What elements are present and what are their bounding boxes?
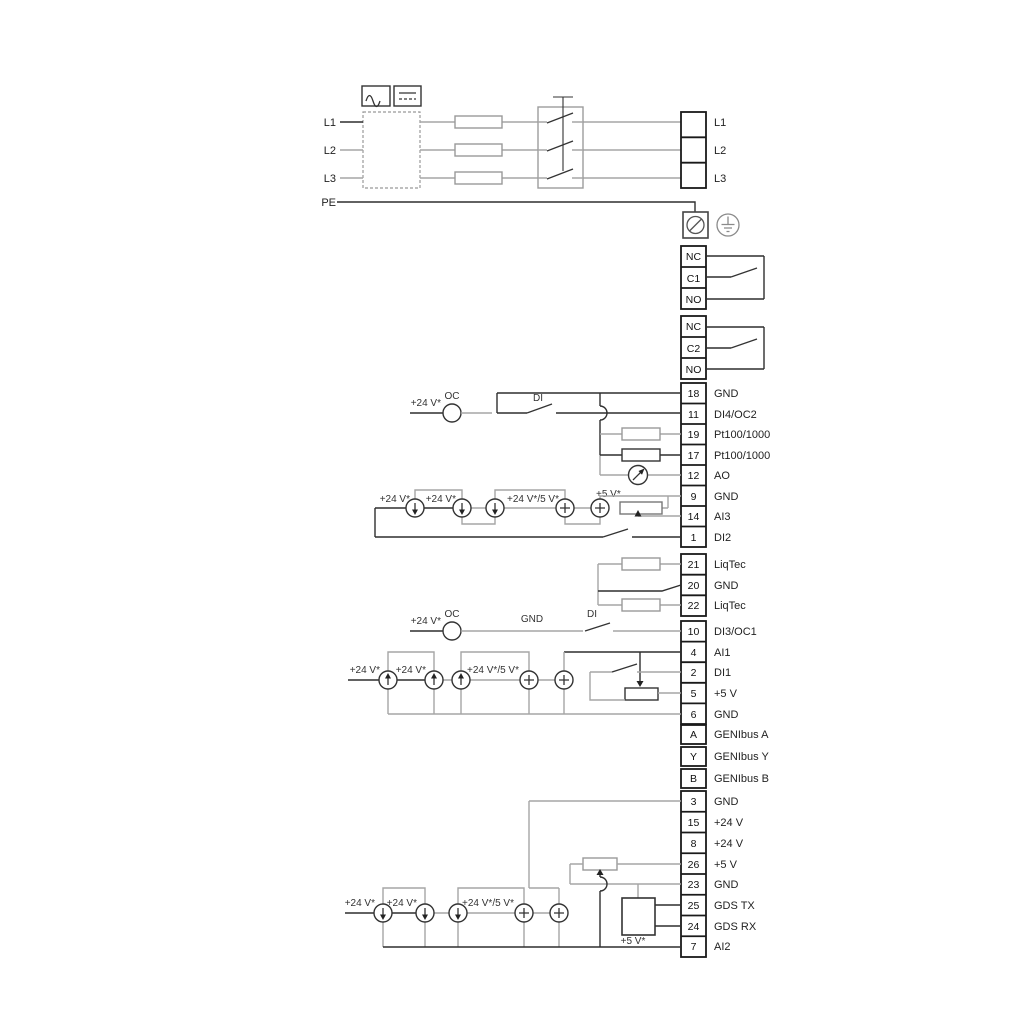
earth-ground-icon (717, 214, 739, 236)
current-source-icon (406, 499, 424, 517)
terminal-label: LiqTec (714, 600, 746, 612)
terminal-label: LiqTec (714, 559, 746, 571)
current-source-icon (379, 671, 397, 689)
terminal-number: 7 (691, 941, 697, 953)
io1-terminal-block: 18 11 19 17 12 9 14 1 GND DI4/OC2 Pt100/… (681, 383, 770, 547)
terminal-number: 2 (691, 667, 697, 679)
io2-wiring: +24 V* OC GND DI +24 V* +24 V* +24 V*/5 … (348, 609, 681, 714)
terminal-label: GENIbus A (714, 729, 769, 741)
plus24v-label: +24 V* (345, 898, 375, 909)
fuse-icon (455, 172, 502, 184)
terminal-number: 19 (688, 429, 700, 441)
terminal-label: AI3 (714, 511, 731, 523)
terminal-label: GDS RX (714, 921, 757, 933)
terminal-label: GENIbus B (714, 773, 769, 785)
label-l1-right: L1 (714, 117, 726, 129)
potentiometer (583, 858, 617, 870)
terminal-number: 18 (688, 388, 700, 400)
plus24v-label: +24 V* (396, 665, 426, 676)
relay2-no: NO (686, 364, 702, 376)
power-wiring (337, 122, 695, 212)
main-disconnect-switch (538, 97, 583, 188)
voltage-source-icon (591, 499, 609, 517)
plus24v-label: +24 V* (387, 898, 417, 909)
plus24v-label: +24 V* (380, 494, 410, 505)
liqtec-sensor-resistor (622, 599, 660, 611)
liqtec-wiring (598, 558, 681, 611)
terminal-number: 15 (688, 817, 700, 829)
plus24v-label: +24 V* (411, 398, 441, 409)
io3-wiring: +5 V* +24 V* +24 V* +24 V*/5 V* (345, 801, 681, 947)
terminal-number: A (690, 729, 697, 741)
terminal-number: 1 (691, 532, 697, 544)
terminal-number: 26 (688, 859, 700, 871)
fuse-icon (455, 116, 502, 128)
relay1-c1: C1 (687, 273, 701, 285)
pt100-resistor (622, 428, 660, 440)
di-label: DI (587, 609, 597, 620)
terminal-label: GND (714, 796, 739, 808)
terminal-label: DI2 (714, 532, 731, 544)
pt100-resistor (622, 449, 660, 461)
relay1-contact-wiring (706, 256, 764, 299)
potentiometer (620, 502, 662, 514)
terminal-label: DI1 (714, 667, 731, 679)
terminal-label: DI4/OC2 (714, 409, 757, 421)
voltage-source-icon (555, 671, 573, 689)
emc-filter-box (363, 112, 420, 188)
terminal-label: +24 V (714, 817, 744, 829)
fuses (455, 116, 502, 184)
dc-symbol-icon (394, 86, 421, 106)
terminal-label: +24 V (714, 838, 744, 850)
terminal-label: +5 V (714, 859, 738, 871)
terminal-label: GND (714, 388, 739, 400)
terminal-number: 12 (688, 470, 700, 482)
oc-label: OC (445, 391, 460, 402)
io2-terminal-block: 10 4 2 5 6 DI3/OC1 AI1 DI1 +5 V GND A Y … (681, 621, 769, 788)
relay1-terminal-block: NC C1 NO (681, 246, 706, 309)
terminal-number: 10 (688, 626, 700, 638)
terminal-number: 4 (691, 647, 697, 659)
plus24v-label: +24 V* (411, 616, 441, 627)
terminal-number: Y (690, 751, 697, 763)
terminal-label: GND (714, 879, 739, 891)
terminal-number: 5 (691, 688, 697, 700)
label-pe-left: PE (321, 197, 336, 209)
current-source-icon (486, 499, 504, 517)
terminal-number: 9 (691, 491, 697, 503)
plus24v-5v-label: +24 V*/5 V* (467, 665, 519, 676)
label-l2-left: L2 (324, 145, 336, 157)
current-source-icon (374, 904, 392, 922)
relay2-contact-wiring (706, 327, 764, 369)
mains-terminal-block: L1 L2 L3 (681, 112, 726, 188)
label-l3-right: L3 (714, 173, 726, 185)
voltage-source-icon (550, 904, 568, 922)
di-label: DI (533, 393, 543, 404)
terminal-label: GND (714, 580, 739, 592)
open-collector-icon (443, 404, 461, 422)
analog-output-meter-icon (629, 466, 648, 485)
terminal-label: GENIbus Y (714, 751, 769, 763)
pe-terminal-icon (683, 212, 708, 238)
plus24v-label: +24 V* (350, 665, 380, 676)
potentiometer (625, 688, 658, 700)
plus24v-5v-label: +24 V*/5 V* (507, 494, 559, 505)
gds-module (622, 898, 655, 935)
terminal-number: 20 (688, 580, 700, 592)
label-l3-left: L3 (324, 173, 336, 185)
power-input-labels: L1 L2 L3 PE (321, 117, 336, 209)
terminal-number: 6 (691, 709, 697, 721)
terminal-label: AO (714, 470, 730, 482)
terminal-label: DI3/OC1 (714, 626, 757, 638)
label-l1-left: L1 (324, 117, 336, 129)
plus24v-label: +24 V* (426, 494, 456, 505)
current-source-icon (416, 904, 434, 922)
terminal-number: 25 (688, 900, 700, 912)
plus5v-label: +5 V* (621, 936, 646, 947)
liqtec-terminal-block: 21 20 22 LiqTec GND LiqTec (681, 554, 746, 616)
current-source-icon (449, 904, 467, 922)
terminal-number: 3 (691, 796, 697, 808)
relay1-no: NO (686, 294, 702, 306)
voltage-source-icon (520, 671, 538, 689)
terminal-number: 14 (688, 511, 700, 523)
relay1-nc: NC (686, 251, 702, 263)
terminal-number: 21 (688, 559, 700, 571)
terminal-number: 23 (688, 879, 700, 891)
io1-wiring: +24 V* OC DI +24 V* +24 V* +24 V*/5 V* +… (375, 391, 681, 537)
current-source-icon (453, 499, 471, 517)
terminal-label: AI2 (714, 941, 731, 953)
relay2-c2: C2 (687, 343, 701, 355)
terminal-number: B (690, 773, 697, 785)
ac-symbol-icon (362, 86, 390, 107)
terminal-number: 8 (691, 838, 697, 850)
terminal-label: GND (714, 709, 739, 721)
terminal-label: +5 V (714, 688, 738, 700)
io3-terminal-block: 3 15 8 26 23 25 24 7 GND +24 V +24 V +5 … (681, 791, 757, 957)
relay2-terminal-block: NC C2 NO (681, 316, 706, 379)
terminal-label: AI1 (714, 647, 731, 659)
terminal-number: 22 (688, 600, 700, 612)
label-l2-right: L2 (714, 145, 726, 157)
terminal-number: 11 (688, 409, 699, 421)
wiring-diagram-page: L1 L2 L3 PE L1 L2 (0, 0, 1024, 1024)
current-source-icon (425, 671, 443, 689)
terminal-label: Pt100/1000 (714, 450, 770, 462)
current-source-icon (452, 671, 470, 689)
terminal-number: 17 (688, 450, 700, 462)
open-collector-icon (443, 622, 461, 640)
plus24v-5v-label: +24 V*/5 V* (462, 898, 514, 909)
liqtec-sensor-resistor (622, 558, 660, 570)
terminal-label: GND (714, 491, 739, 503)
terminal-number: 24 (688, 921, 700, 933)
voltage-source-icon (515, 904, 533, 922)
fuse-icon (455, 144, 502, 156)
oc-label: OC (445, 609, 460, 620)
relay2-nc: NC (686, 321, 702, 333)
voltage-source-icon (556, 499, 574, 517)
terminal-label: GDS TX (714, 900, 755, 912)
wiper-arrow-icon (637, 681, 644, 687)
wiring-diagram: L1 L2 L3 PE L1 L2 (0, 0, 1024, 1024)
gnd-label: GND (521, 614, 543, 625)
terminal-label: Pt100/1000 (714, 429, 770, 441)
